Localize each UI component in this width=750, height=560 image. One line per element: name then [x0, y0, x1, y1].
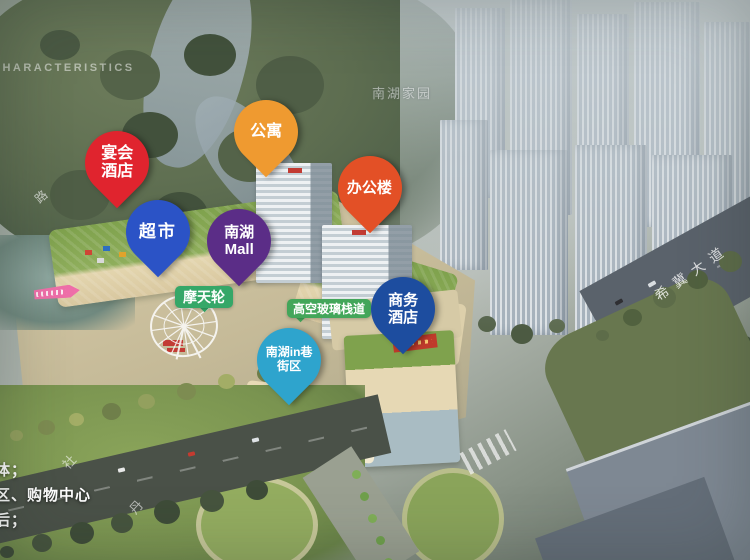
lawn-circle	[402, 468, 504, 560]
roadside-trees	[0, 546, 14, 558]
pin-label-text: 商务	[388, 292, 418, 309]
avenue-trees	[596, 330, 609, 341]
glass-skywalk-tag: 高空玻璃栈道	[287, 299, 371, 318]
pin-marker: 宴会酒店	[72, 118, 163, 209]
pin-label-text: 宴会	[101, 145, 133, 163]
pin-label-text: 街区	[266, 360, 313, 374]
pin-label-text: 南湖	[224, 224, 254, 241]
pin-business-hotel: 商务酒店	[371, 277, 435, 341]
pin-label-text: 办公楼	[347, 179, 392, 196]
pin-marker: 超市	[113, 187, 204, 278]
pin-supermarket: 超市	[126, 200, 190, 264]
pin-nanhu-in-lane-block: 南湖in巷街区	[257, 328, 321, 392]
pin-apartment: 公寓	[234, 100, 298, 164]
helipad-sign	[288, 168, 302, 173]
pin-label-text: 公寓	[250, 123, 282, 141]
rooftop-garden-dots	[85, 250, 92, 255]
pin-marker: 南湖Mall	[194, 196, 285, 287]
ferris-wheel-tag-label: 摩天轮	[175, 286, 233, 308]
district-label: 南湖家园	[372, 83, 432, 102]
pin-label-text: 酒店	[101, 163, 133, 181]
aerial-rendering: CHARACTERISTICS 南湖家园 希冀大道 路 社 丹 体； 区、购物中…	[0, 0, 750, 560]
residential-tower	[490, 150, 568, 335]
pin-marker: 办公楼	[325, 143, 416, 234]
pin-marker: 南湖in巷街区	[244, 315, 335, 406]
pin-banquet-hotel: 宴会酒店	[85, 131, 149, 195]
cropped-caption-line: 后；	[0, 509, 27, 530]
median-trees	[352, 470, 361, 479]
glass-skywalk-tag-label: 高空玻璃栈道	[287, 299, 371, 318]
crosswalk	[459, 429, 516, 475]
rooftop-sign	[352, 230, 366, 235]
pin-label-text: Mall	[224, 241, 254, 258]
pin-office-building: 办公楼	[338, 156, 402, 220]
cropped-caption-line: 区、购物中心	[0, 484, 91, 505]
pin-nanhu-mall: 南湖Mall	[207, 209, 271, 273]
pin-marker: 公寓	[221, 87, 312, 178]
pin-marker: 商务酒店	[358, 264, 449, 355]
pin-label-text: 超市	[139, 222, 177, 242]
pin-label-text: 酒店	[388, 309, 418, 326]
watermark: CHARACTERISTICS	[0, 62, 135, 74]
roadside-trees	[10, 430, 23, 441]
park-trees	[40, 30, 80, 60]
ferris-wheel-tag: 摩天轮	[175, 286, 233, 308]
cropped-caption-line: 体；	[0, 459, 27, 480]
residential-tower	[440, 120, 488, 270]
